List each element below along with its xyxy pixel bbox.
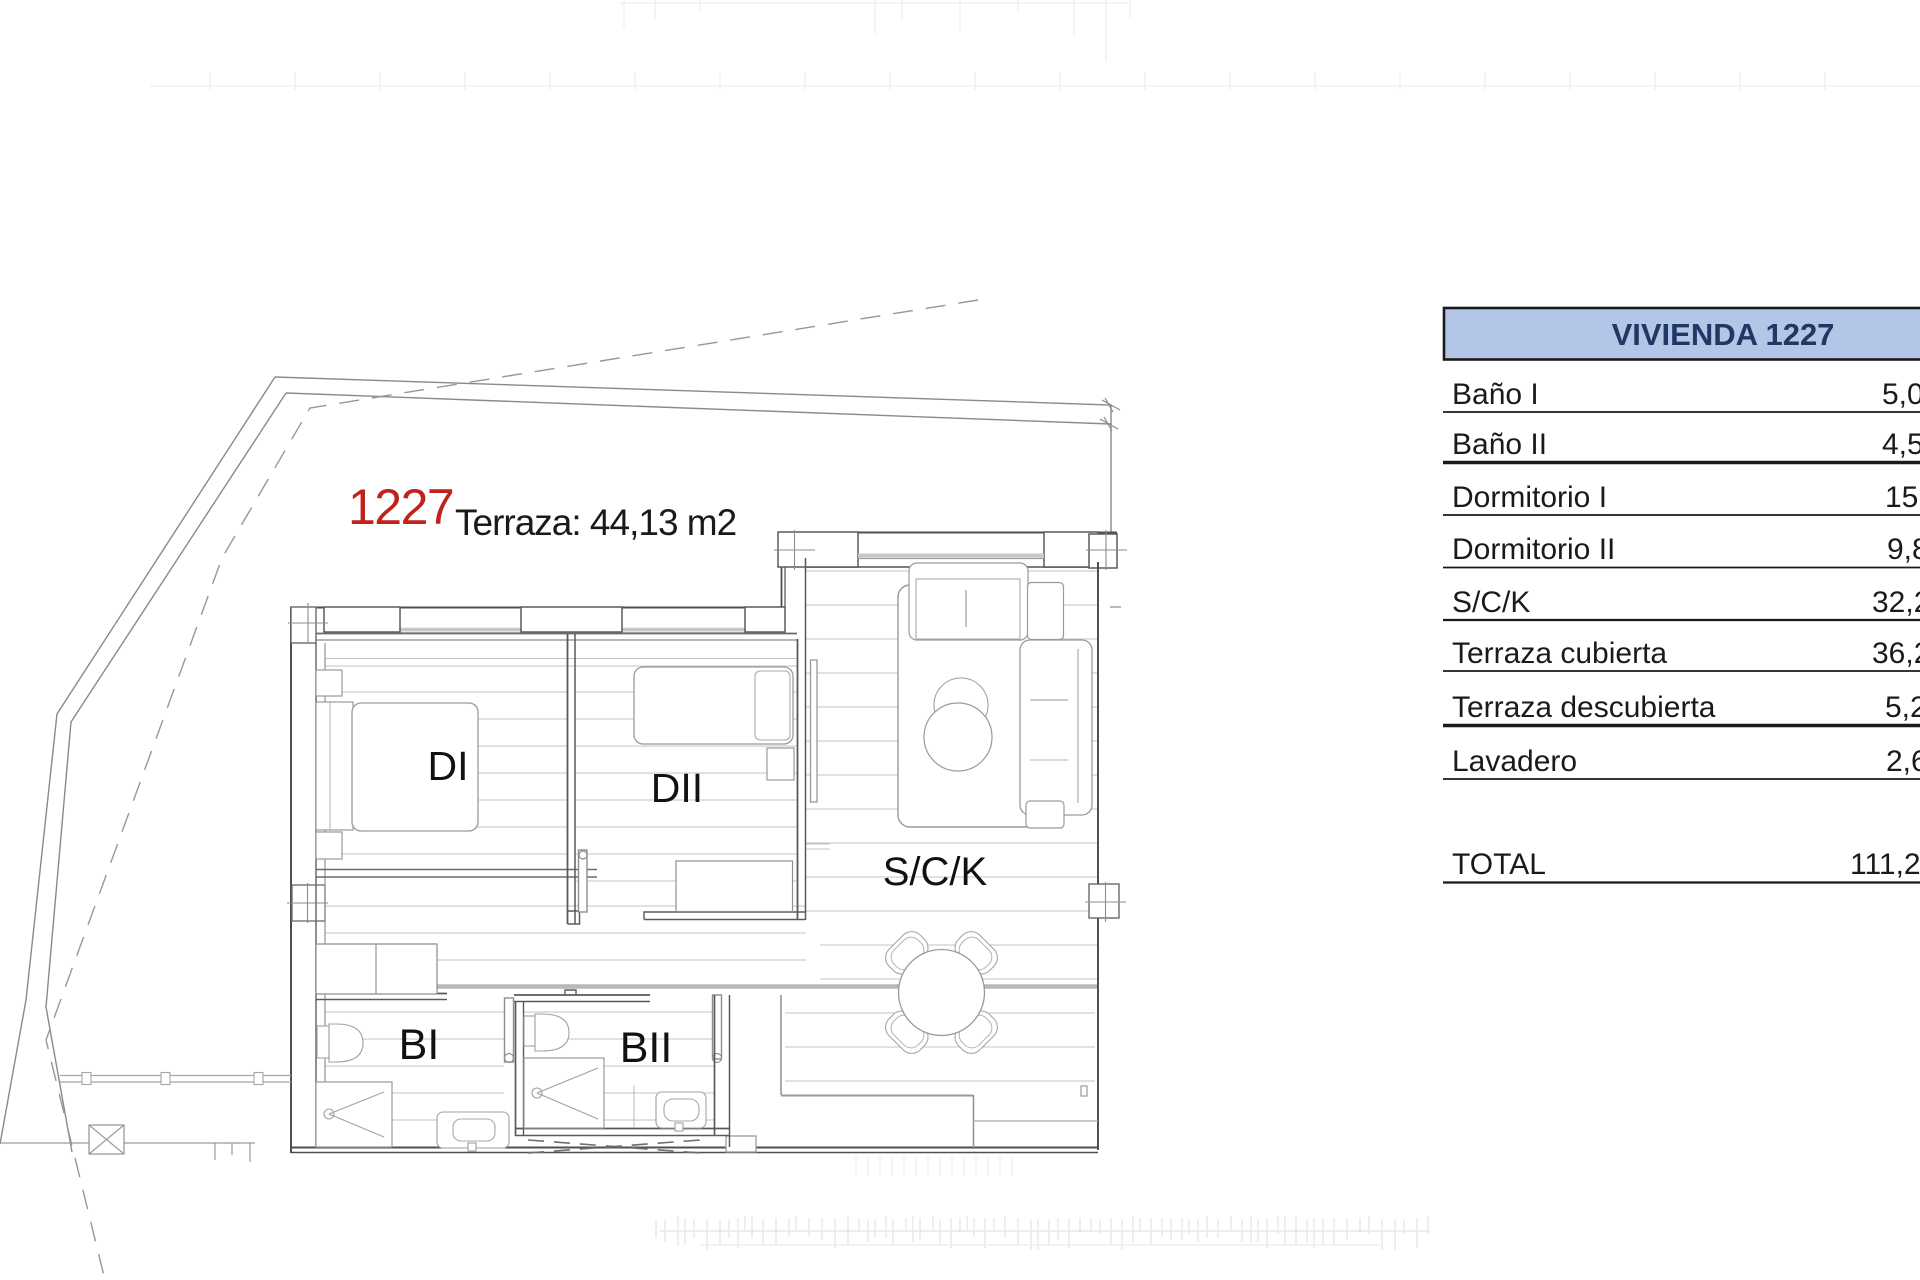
svg-text:Baño I: Baño I	[1452, 378, 1539, 411]
svg-text:5,0: 5,0	[1882, 378, 1920, 411]
svg-text:Dormitorio I: Dormitorio I	[1452, 481, 1607, 514]
svg-text:1227: 1227	[348, 479, 453, 535]
svg-text:9,8: 9,8	[1887, 533, 1920, 566]
svg-text:BI: BI	[399, 1021, 440, 1069]
svg-text:2,6: 2,6	[1886, 745, 1920, 778]
svg-text:15,: 15,	[1885, 481, 1920, 514]
svg-text:Terraza descubierta: Terraza descubierta	[1452, 691, 1716, 724]
svg-text:32,2: 32,2	[1872, 586, 1920, 619]
svg-text:Lavadero: Lavadero	[1452, 745, 1577, 778]
svg-text:S/C/K: S/C/K	[1452, 586, 1530, 619]
svg-text:5,2: 5,2	[1885, 691, 1920, 724]
svg-text:S/C/K: S/C/K	[883, 850, 988, 894]
svg-text:111,2: 111,2	[1850, 848, 1920, 881]
svg-text:Dormitorio II: Dormitorio II	[1452, 533, 1615, 566]
svg-text:DII: DII	[651, 765, 703, 811]
svg-text:TOTAL: TOTAL	[1452, 848, 1546, 881]
svg-text:DI: DI	[428, 743, 469, 789]
svg-text:VIVIENDA 1227: VIVIENDA 1227	[1612, 317, 1835, 352]
svg-text:BII: BII	[620, 1024, 673, 1072]
svg-text:Terraza cubierta: Terraza cubierta	[1452, 637, 1667, 670]
svg-text:Baño II: Baño II	[1452, 428, 1547, 461]
svg-text:4,5: 4,5	[1882, 428, 1920, 461]
svg-text:Terraza: 44,13 m2: Terraza: 44,13 m2	[455, 502, 736, 543]
svg-text:36,2: 36,2	[1872, 637, 1920, 670]
